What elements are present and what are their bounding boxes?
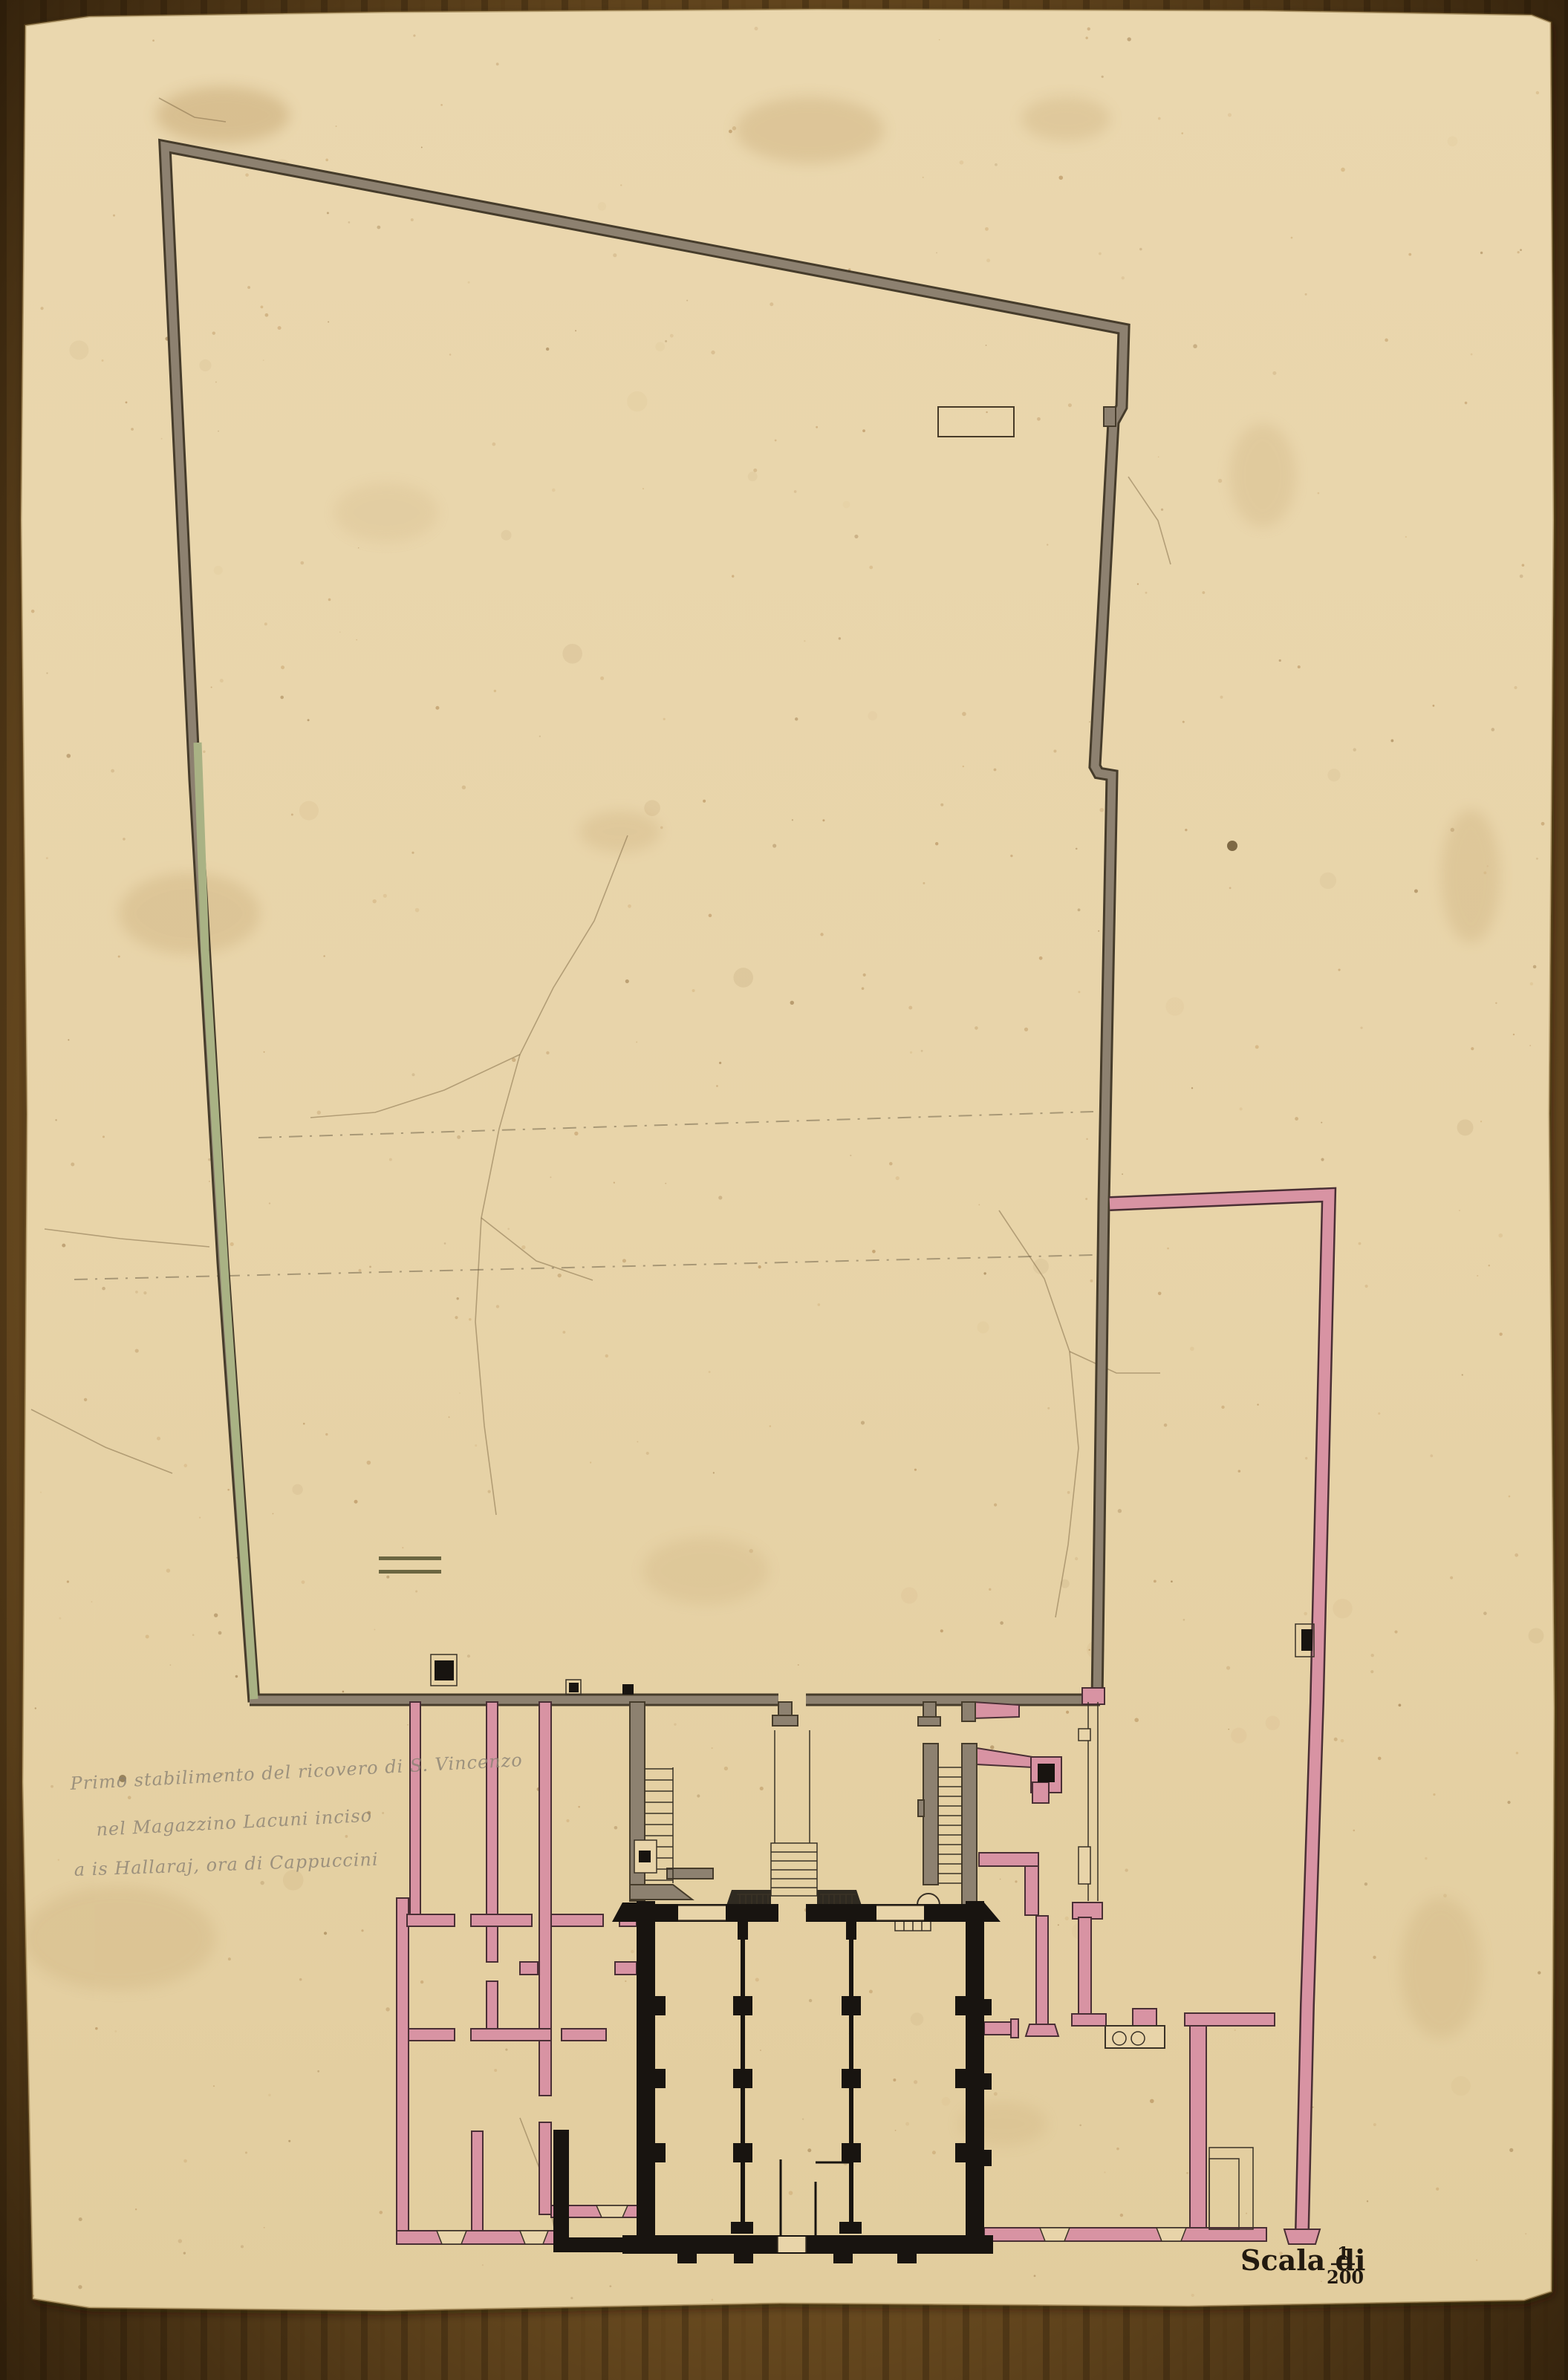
column-pier xyxy=(842,2143,861,2162)
splayed-window xyxy=(596,2205,628,2217)
splayed-window xyxy=(1157,2228,1186,2241)
door-jamb-stub xyxy=(615,1962,637,1975)
marker-square xyxy=(435,1660,454,1680)
splayed-window xyxy=(1040,2228,1070,2241)
column-pier xyxy=(733,1996,752,2015)
double-bar-mark xyxy=(379,1556,441,1560)
paper-edge xyxy=(21,9,1555,2311)
doorway xyxy=(678,1905,726,1920)
black-wing-wall xyxy=(553,2130,569,2241)
scale-denominator: 200 xyxy=(1327,2266,1364,2288)
double-bar-mark xyxy=(379,1570,441,1574)
column-pier xyxy=(842,2069,861,2088)
column-pier xyxy=(733,2069,752,2088)
column-pier xyxy=(842,1996,861,2015)
doorway xyxy=(876,1905,924,1920)
door-jamb-stub xyxy=(520,1962,538,1975)
pink-wall-foot xyxy=(1026,2024,1058,2036)
wall-end-cap xyxy=(1082,1688,1105,1704)
column-pier xyxy=(733,2143,752,2162)
splayed-window xyxy=(520,2231,548,2244)
facade-pilaster xyxy=(734,2254,753,2263)
doorway xyxy=(778,2237,806,2252)
marker-square xyxy=(622,1684,634,1695)
paper-sheet xyxy=(21,9,1555,2311)
wall-notch xyxy=(1104,407,1116,426)
church-west-wall xyxy=(637,1901,655,2237)
scale-numerator: 1 xyxy=(1337,2243,1350,2264)
facade-pilaster xyxy=(677,2254,697,2263)
tapered-wall xyxy=(973,1702,1019,1718)
pink-wall-foot xyxy=(1284,2229,1320,2244)
church-east-wall xyxy=(966,1901,984,2237)
plan-drawing: Primo stabilimento del ricovero di S. Vi… xyxy=(0,0,1568,2380)
marker-square xyxy=(1301,1629,1312,1651)
marker-square xyxy=(569,1683,579,1692)
pier-square xyxy=(639,1851,651,1862)
scanned-plan-page: Primo stabilimento del ricovero di S. Vi… xyxy=(0,0,1568,2380)
marker-square xyxy=(1038,1764,1055,1782)
splayed-window xyxy=(437,2231,466,2244)
church-south-wall xyxy=(622,2235,993,2254)
facade-pilaster xyxy=(897,2254,917,2263)
facade-pilaster xyxy=(833,2254,853,2263)
ink-blot xyxy=(1227,841,1237,851)
